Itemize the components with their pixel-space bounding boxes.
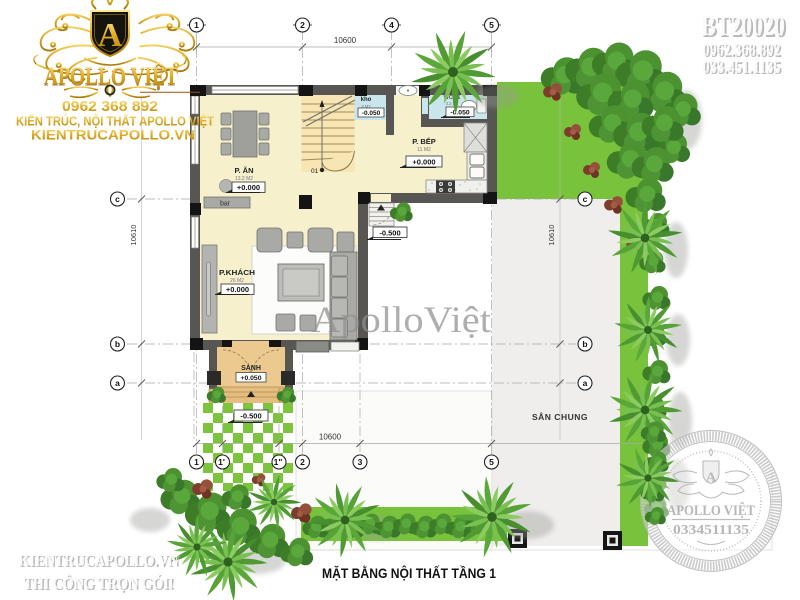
svg-text:a: a — [115, 378, 120, 388]
svg-text:1": 1" — [274, 457, 283, 467]
svg-text:c: c — [115, 194, 120, 204]
svg-text:10600: 10600 — [319, 433, 342, 442]
svg-text:+0.000: +0.000 — [226, 285, 249, 294]
svg-text:+0.000: +0.000 — [412, 158, 435, 167]
svg-text:KIENTRUCAPOLLO.VN: KIENTRUCAPOLLO.VN — [19, 551, 180, 570]
svg-text:b: b — [115, 339, 120, 349]
svg-text:KIENTRUCAPOLLO.VN: KIENTRUCAPOLLO.VN — [31, 127, 195, 143]
svg-text:13.2 M2: 13.2 M2 — [235, 176, 253, 182]
svg-text:10610: 10610 — [129, 225, 138, 246]
svg-text:-0.050: -0.050 — [450, 110, 469, 117]
svg-text:2: 2 — [300, 20, 305, 30]
svg-text:4: 4 — [389, 20, 394, 30]
svg-text:P. ĂN: P. ĂN — [234, 166, 253, 175]
svg-text:bar: bar — [220, 201, 231, 208]
svg-text:-0.500: -0.500 — [240, 412, 261, 421]
svg-text:5: 5 — [489, 20, 494, 30]
svg-text:1': 1' — [218, 457, 225, 467]
svg-text:MẶT BẰNG NỘI THẤT TẦNG 1: MẶT BẰNG NỘI THẤT TẦNG 1 — [322, 566, 496, 581]
svg-text:0334511135: 0334511135 — [673, 522, 749, 537]
svg-text:BT20020: BT20020 — [701, 10, 785, 42]
svg-text:A: A — [98, 17, 123, 54]
svg-text:+0.000: +0.000 — [237, 183, 260, 192]
svg-text:1: 1 — [194, 457, 199, 467]
svg-text:a: a — [583, 378, 588, 388]
svg-text:+0.050: +0.050 — [241, 375, 262, 382]
svg-text:P.KHÁCH: P.KHÁCH — [219, 268, 255, 277]
svg-text:SÂN CHUNG: SÂN CHUNG — [532, 411, 588, 422]
svg-text:0962 368 892: 0962 368 892 — [62, 99, 158, 115]
svg-text:11 M2: 11 M2 — [417, 147, 431, 153]
svg-text:01: 01 — [311, 168, 319, 175]
svg-text:A: A — [706, 470, 717, 486]
svg-text:SẢNH: SẢNH — [241, 363, 261, 372]
svg-text:3: 3 — [358, 457, 363, 467]
svg-text:5: 5 — [489, 457, 494, 467]
svg-text:10610: 10610 — [547, 225, 556, 246]
svg-text:kho: kho — [361, 97, 372, 103]
svg-text:-0.500: -0.500 — [379, 229, 400, 238]
svg-text:2: 2 — [300, 457, 305, 467]
svg-text:c: c — [583, 194, 588, 204]
svg-text:-0.050: -0.050 — [362, 110, 381, 117]
svg-text:APOLLO VIỆT: APOLLO VIỆT — [667, 502, 755, 519]
svg-text:b: b — [582, 339, 587, 349]
svg-text:26 M2: 26 M2 — [230, 278, 244, 284]
svg-text:ApolloViệt: ApolloViệt — [311, 300, 492, 341]
svg-text:THI CÔNG TRỌN GÓI!: THI CÔNG TRỌN GÓI! — [24, 574, 174, 593]
svg-text:033.451.1135: 033.451.1135 — [703, 57, 781, 77]
svg-text:P. BẾP: P. BẾP — [412, 136, 436, 146]
svg-text:10600: 10600 — [334, 36, 357, 45]
svg-text:1: 1 — [194, 20, 199, 30]
